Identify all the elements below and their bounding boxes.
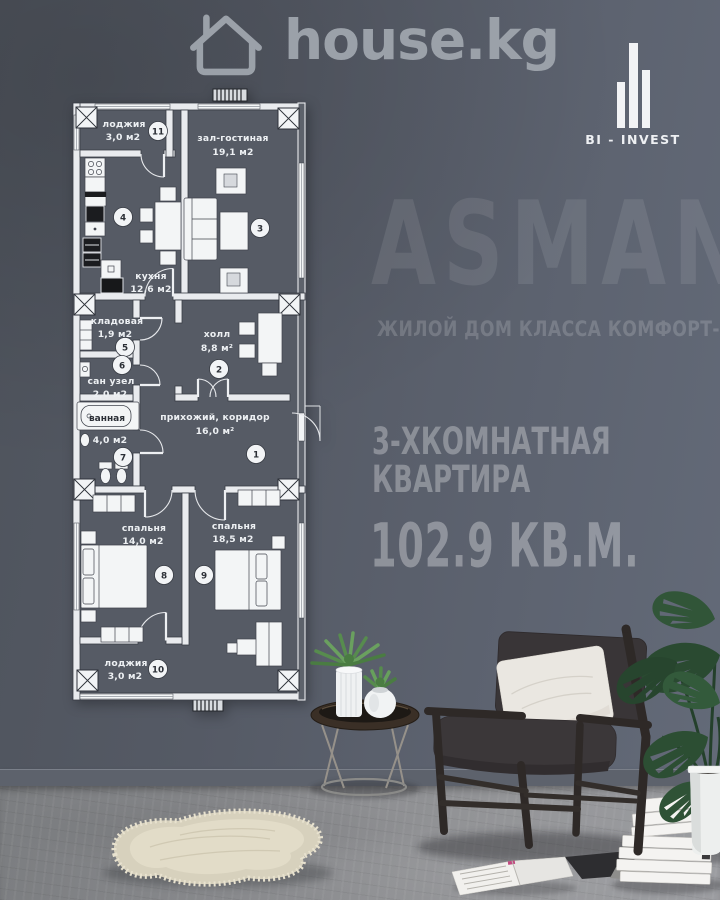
svg-text:12,6 м2: 12,6 м2 bbox=[130, 284, 171, 295]
apartment-type: 3-ХКОМНАТНАЯ КВАРТИРА bbox=[372, 423, 611, 499]
svg-text:8,8 м²: 8,8 м² bbox=[201, 343, 233, 354]
svg-text:3,0 м2: 3,0 м2 bbox=[106, 132, 141, 143]
potted-plant-small bbox=[364, 668, 396, 718]
developer-logo: BI - INVEST bbox=[578, 132, 688, 147]
svg-text:7: 7 bbox=[120, 454, 126, 464]
svg-text:спальня: спальня bbox=[212, 521, 256, 532]
svg-text:2,0 м2: 2,0 м2 bbox=[93, 389, 128, 400]
svg-text:ванная: ванная bbox=[89, 414, 125, 424]
svg-text:3: 3 bbox=[257, 225, 263, 235]
dining-table bbox=[155, 202, 181, 250]
svg-text:19,1 м2: 19,1 м2 bbox=[212, 147, 253, 158]
svg-text:кладовая: кладовая bbox=[91, 316, 143, 327]
svg-text:холл: холл bbox=[204, 329, 231, 340]
apartment-type-line2: КВАРТИРА bbox=[372, 461, 611, 499]
svg-text:6: 6 bbox=[119, 362, 125, 372]
plant-pot bbox=[688, 766, 720, 855]
poster: house.kg BI - INVEST ASMAN ЖИЛОЙ ДОМ КЛА… bbox=[0, 0, 720, 900]
interior-scene bbox=[60, 585, 720, 900]
vent-shaft-top bbox=[213, 89, 247, 101]
svg-text:16,0 м²: 16,0 м² bbox=[196, 426, 235, 437]
svg-text:прихожий, коридор: прихожий, коридор bbox=[160, 412, 270, 423]
total-area: 102.9 КВ.М. bbox=[370, 510, 639, 581]
svg-text:5: 5 bbox=[122, 344, 128, 354]
apartment-type-line1: 3-ХКОМНАТНАЯ bbox=[372, 423, 611, 461]
brand-logo: house.kg bbox=[284, 8, 559, 72]
svg-text:14,0 м2: 14,0 м2 bbox=[122, 536, 163, 547]
svg-text:спальня: спальня bbox=[122, 523, 166, 534]
project-name-watermark: ASMAN bbox=[371, 186, 720, 302]
svg-text:1: 1 bbox=[253, 451, 259, 461]
entrance-door bbox=[299, 413, 305, 441]
svg-text:18,5 м2: 18,5 м2 bbox=[212, 534, 253, 545]
svg-text:лоджия: лоджия bbox=[102, 119, 145, 130]
project-tagline: ЖИЛОЙ ДОМ КЛАССА КОМФОРТ-ПЛЮС bbox=[377, 317, 720, 342]
rug bbox=[114, 811, 321, 884]
svg-text:кухня: кухня bbox=[135, 271, 166, 282]
svg-text:2: 2 bbox=[216, 366, 222, 376]
svg-text:сан узел: сан узел bbox=[87, 376, 134, 387]
sofa bbox=[184, 198, 217, 260]
house-icon bbox=[184, 6, 268, 80]
svg-text:11: 11 bbox=[152, 128, 164, 138]
svg-text:4: 4 bbox=[120, 214, 126, 224]
svg-text:9: 9 bbox=[201, 572, 207, 582]
svg-text:зал-гостиная: зал-гостиная bbox=[197, 133, 268, 144]
svg-text:8: 8 bbox=[161, 572, 167, 582]
building-bars-icon bbox=[615, 42, 653, 130]
desk bbox=[258, 313, 282, 363]
svg-text:4,0 м2: 4,0 м2 bbox=[93, 435, 128, 446]
armchair bbox=[428, 625, 648, 851]
